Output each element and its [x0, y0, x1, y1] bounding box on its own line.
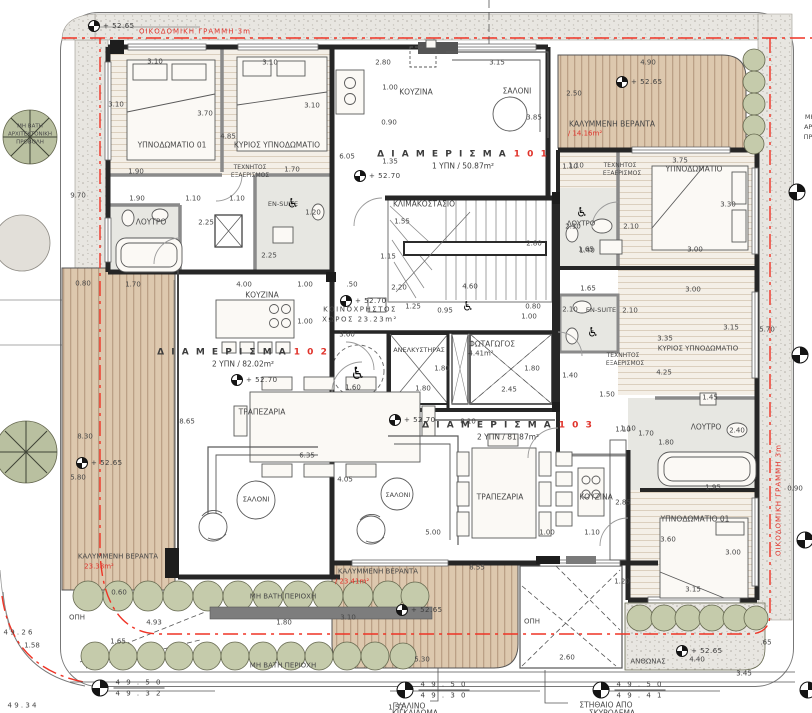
planter-bed-southeast	[625, 603, 768, 670]
bush-strip-northeast	[743, 49, 765, 154]
floor-plan-canvas: ΥΠΝΟΔΩΜΑΤΙΟ 01ΚΥΡΙΟΣ ΥΠΝΟΔΩΜΑΤΙΟΛΟΥΤΡΟEN…	[0, 0, 812, 713]
staircase	[388, 198, 552, 302]
tree	[0, 110, 57, 483]
bush-strip-southwest-lower	[81, 642, 416, 670]
floor-plan-drawing	[0, 0, 812, 713]
south-parapet-band	[210, 607, 432, 619]
